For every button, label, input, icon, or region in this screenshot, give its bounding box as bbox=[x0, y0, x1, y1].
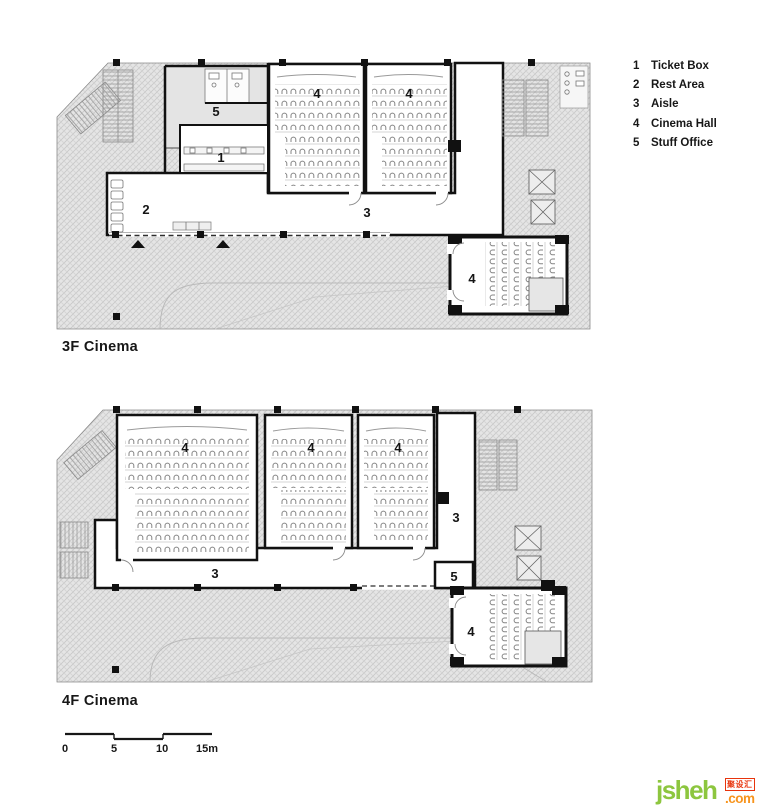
legend-item-rest-area: 2 Rest Area bbox=[633, 76, 717, 95]
watermark-name: jsheh bbox=[656, 774, 716, 806]
lobby-sofas bbox=[111, 180, 123, 232]
scale-tick-10: 10 bbox=[156, 743, 168, 755]
floor-plan-4f: 4 4 4 3 3 5 4 bbox=[55, 400, 595, 690]
floor-title-3f: 3F Cinema bbox=[62, 339, 138, 355]
stair-run-icon bbox=[479, 440, 497, 490]
lobby-bench bbox=[173, 222, 211, 230]
room-label-rest: 2 bbox=[142, 202, 149, 217]
room-label-aisle-v: 3 bbox=[452, 510, 459, 525]
room-label-ticket: 1 bbox=[217, 150, 224, 165]
legend-label: Rest Area bbox=[651, 76, 704, 95]
room-label-aisle: 3 bbox=[363, 205, 370, 220]
stair-run-icon bbox=[502, 80, 524, 136]
watermark-tld: .com bbox=[725, 791, 755, 806]
room-label-hall-small: 4 bbox=[467, 624, 475, 639]
legend-label: Aisle bbox=[651, 95, 679, 114]
floor-plan-3f: 5 1 4 4 2 3 4 bbox=[55, 50, 595, 340]
room-label-hall-b: 4 bbox=[307, 440, 315, 455]
legend-item-ticket-box: 1 Ticket Box bbox=[633, 57, 717, 76]
watermark-logo: jsheh 聚设汇 .com bbox=[656, 774, 768, 810]
room-label-hall-c: 4 bbox=[394, 440, 402, 455]
legend-label: Cinema Hall bbox=[651, 115, 717, 134]
legend-number: 3 bbox=[633, 95, 642, 114]
legend-item-aisle: 3 Aisle bbox=[633, 95, 717, 114]
room-label-hall-small: 4 bbox=[468, 271, 476, 286]
scale-tick-0: 0 bbox=[62, 743, 68, 755]
scale-bar: 0 5 10 15m bbox=[55, 727, 230, 763]
scale-tick-15m: 15m bbox=[196, 743, 218, 755]
room-label-hall-a: 4 bbox=[181, 440, 189, 455]
legend-number: 1 bbox=[633, 57, 642, 76]
legend-number: 5 bbox=[633, 134, 642, 153]
legend-label: Ticket Box bbox=[651, 57, 709, 76]
room-label-hall-a: 4 bbox=[313, 86, 321, 101]
legend-number: 2 bbox=[633, 76, 642, 95]
legend-item-stuff-office: 5 Stuff Office bbox=[633, 134, 717, 153]
legend-number: 4 bbox=[633, 115, 642, 134]
room-label-aisle-h: 3 bbox=[211, 566, 218, 581]
floor-title-4f: 4F Cinema bbox=[62, 693, 138, 709]
stair-run-icon bbox=[60, 522, 88, 548]
room-label-office: 5 bbox=[450, 569, 457, 584]
legend: 1 Ticket Box 2 Rest Area 3 Aisle 4 Cinem… bbox=[633, 57, 717, 153]
legend-item-cinema-hall: 4 Cinema Hall bbox=[633, 115, 717, 134]
scale-tick-5: 5 bbox=[111, 743, 117, 755]
room-label-hall-b: 4 bbox=[405, 86, 413, 101]
room-label-office: 5 bbox=[212, 104, 219, 119]
legend-label: Stuff Office bbox=[651, 134, 713, 153]
watermark-chinese-badge: 聚设汇 bbox=[725, 778, 755, 791]
